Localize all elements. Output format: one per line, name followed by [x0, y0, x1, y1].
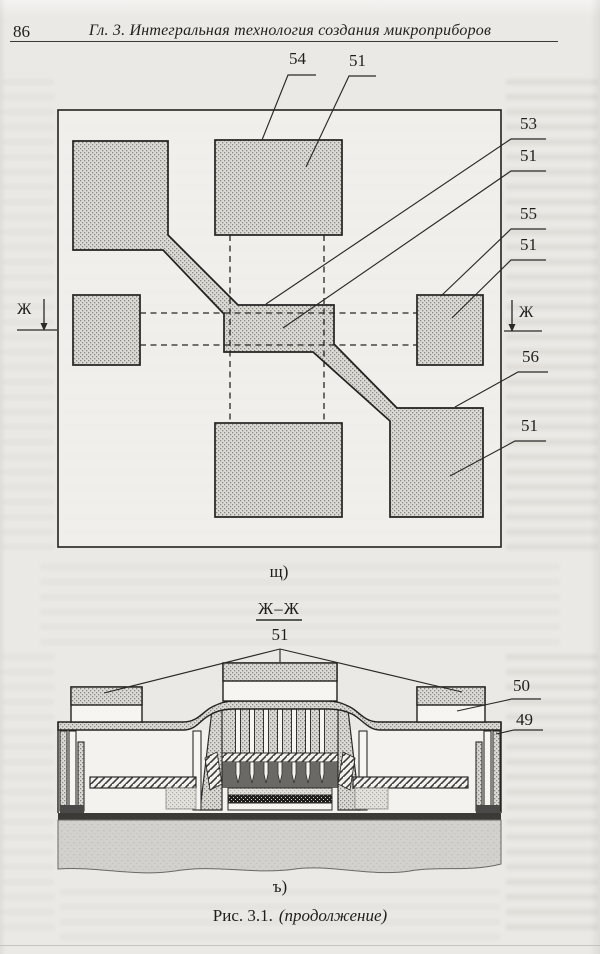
page-number: 86 [13, 23, 30, 40]
callout-55: 55 [520, 205, 537, 222]
figure-caption-number: Рис. 3.1. [213, 906, 273, 925]
figure-line-art [0, 0, 600, 954]
callout-51-right: 51 [520, 236, 537, 253]
callout-49: 49 [516, 711, 533, 728]
section-marker-right: Ж [519, 305, 533, 321]
figure-plan-art [17, 75, 548, 547]
callout-53: 53 [520, 115, 537, 132]
figure-caption: Рис. 3.1.(продолжение) [150, 907, 450, 924]
section-title: Ж–Ж [249, 600, 309, 617]
callout-51-mid: 51 [520, 147, 537, 164]
callout-50: 50 [513, 677, 530, 694]
section-marker-left: Ж [17, 302, 31, 318]
header-rule [10, 41, 558, 42]
chapter-header: Гл. 3. Интегральная технология создания … [60, 23, 520, 39]
callout-54: 54 [289, 50, 306, 67]
panel-label-hard-sign: ъ) [265, 878, 295, 895]
callout-51-top: 51 [349, 52, 366, 69]
callout-56: 56 [522, 348, 539, 365]
callout-51-section: 51 [264, 626, 296, 643]
figure-section-art [58, 620, 543, 873]
figure-caption-continuation: (продолжение) [279, 906, 387, 925]
callout-51-bottom: 51 [521, 417, 538, 434]
panel-label-shch: щ) [264, 563, 294, 580]
